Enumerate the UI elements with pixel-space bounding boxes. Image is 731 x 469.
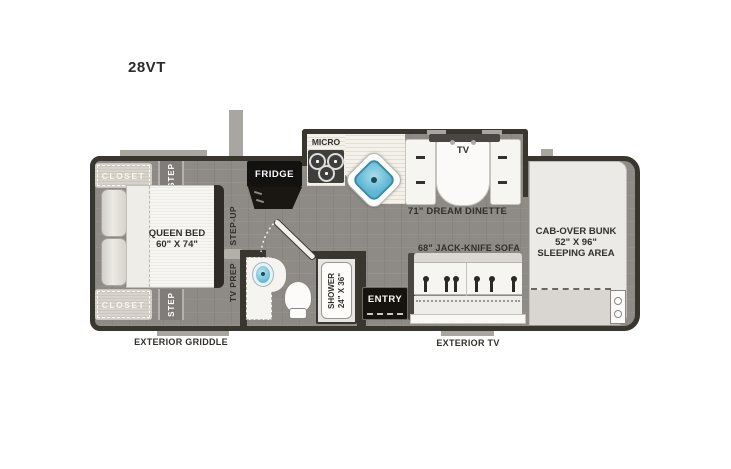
- step-up-label: STEP-UP: [228, 206, 238, 246]
- step-up-area: STEP-UP: [221, 201, 245, 251]
- floorplan-canvas: 28VT CLOSET CLOSET STEP STEP QUEEN BED 6…: [0, 0, 731, 469]
- queen-bed-label: QUEEN BED 60" X 74": [135, 227, 219, 251]
- bunk-label-area: CAB-OVER BUNK 52" X 96" SLEEPING AREA: [527, 223, 625, 261]
- sofa-back: [414, 253, 522, 263]
- shower-label-line1: SHOWER: [327, 273, 336, 309]
- exterior-tv-label: EXTERIOR TV: [436, 338, 499, 348]
- entry-label-area: ENTRY: [363, 288, 407, 310]
- seat-belt: [424, 280, 427, 292]
- bench-seam: [498, 156, 507, 159]
- cab-console: [610, 290, 626, 324]
- micro-label: MICRO: [312, 137, 340, 147]
- bath-top-wall-left: [240, 250, 266, 257]
- dinette-bench-right: [490, 139, 521, 205]
- sofa-seat: [414, 263, 522, 295]
- fridge-label: FRIDGE: [255, 169, 294, 180]
- bath-sink-drain: [261, 272, 265, 276]
- sofa-base-rail: [410, 314, 526, 324]
- dinette-label-area: 71" DREAM DINETTE: [400, 205, 515, 217]
- seat-belt: [512, 280, 515, 292]
- entry-label: ENTRY: [368, 294, 402, 305]
- bunk-line1: CAB-OVER BUNK: [536, 226, 617, 237]
- queen-bed-line1: QUEEN BED: [149, 228, 205, 239]
- tv-prep-label: TV PREP: [228, 263, 238, 302]
- sofa-skirt: [414, 296, 522, 314]
- micro-label-area: MICRO: [306, 136, 346, 148]
- closet-bottom: CLOSET: [95, 289, 152, 320]
- stove: [308, 150, 344, 183]
- seat-belt: [475, 280, 478, 292]
- seat-belt: [445, 280, 448, 292]
- console-knob-1: [614, 297, 622, 305]
- bunk-dashed-line: [531, 288, 611, 290]
- sofa-stitch-line: [416, 300, 520, 302]
- bunk-line2: 52" X 96": [555, 237, 597, 248]
- console-knob-2: [614, 310, 622, 318]
- bench-seam: [498, 181, 507, 184]
- fridge: FRIDGE: [247, 161, 302, 187]
- stove-burner-3: [318, 165, 335, 182]
- dinette-tv-unit: [429, 134, 500, 142]
- pillow-bottom: [101, 238, 127, 286]
- entry-door: ENTRY: [362, 287, 408, 320]
- bench-seam: [416, 181, 425, 184]
- step-bottom-label: STEP: [167, 292, 176, 317]
- bench-seam: [416, 156, 425, 159]
- queen-bed-line2: 60" X 74": [156, 239, 198, 250]
- exterior-tv-label-area: EXTERIOR TV: [408, 337, 528, 349]
- exterior-griddle-label: EXTERIOR GRIDDLE: [134, 337, 228, 347]
- dinette-bunk-wall: [523, 159, 528, 197]
- closet-top-label: CLOSET: [97, 165, 150, 186]
- kitchen-sink-drain: [371, 177, 377, 183]
- seat-belt: [490, 280, 493, 292]
- dinette-bench-left: [405, 139, 436, 205]
- entry-steps: [367, 313, 403, 315]
- dinette-tv-label: TV: [457, 145, 469, 156]
- step-bottom: STEP: [158, 289, 184, 320]
- pillow-top: [101, 189, 127, 237]
- seat-belt: [454, 280, 457, 292]
- dinette-label: 71" DREAM DINETTE: [408, 206, 507, 217]
- exterior-griddle-label-area: EXTERIOR GRIDDLE: [121, 336, 241, 348]
- bunk-line3: SLEEPING AREA: [537, 248, 614, 259]
- cab-area: [530, 290, 610, 325]
- shower-label-line2: 24" X 36": [337, 273, 346, 308]
- toilet-base: [289, 308, 307, 319]
- dinette-tv-label-area: TV: [443, 144, 483, 156]
- exterior-utility-tab: [229, 110, 243, 159]
- page-title: 28VT: [128, 59, 166, 76]
- shower-pan: SHOWER 24" X 36": [321, 262, 352, 319]
- closet-bottom-label: CLOSET: [97, 291, 150, 318]
- sofa-label: 68" JACK-KNIFE SOFA: [418, 243, 520, 253]
